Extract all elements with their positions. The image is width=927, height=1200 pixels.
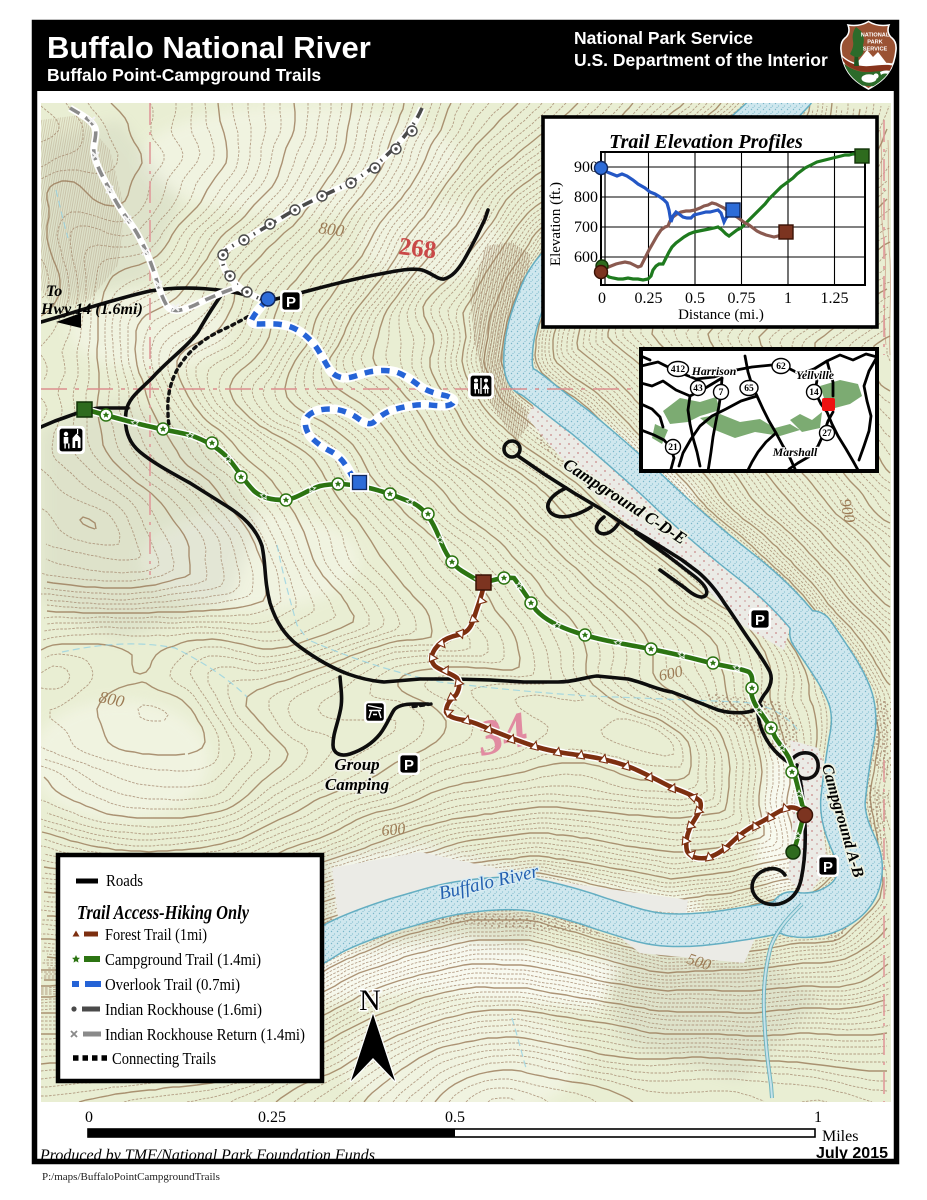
svg-text:Forest Trail (1mi): Forest Trail (1mi): [105, 925, 207, 944]
svg-text:Buffalo Point-Campground Trail: Buffalo Point-Campground Trails: [47, 65, 321, 85]
svg-text:600: 600: [381, 821, 407, 840]
svg-text:0.25: 0.25: [258, 1109, 286, 1126]
svg-text:Indian Rockhouse (1.6mi): Indian Rockhouse (1.6mi): [105, 1000, 262, 1019]
svg-text:1.25: 1.25: [821, 290, 849, 307]
svg-text:700: 700: [574, 219, 598, 236]
svg-text:Harrison: Harrison: [691, 364, 737, 378]
svg-text:Trail Elevation Profiles: Trail Elevation Profiles: [609, 131, 803, 153]
svg-text:0.75: 0.75: [728, 290, 756, 307]
svg-text:Campground Trail (1.4mi): Campground Trail (1.4mi): [105, 950, 261, 969]
svg-text:NATIONAL: NATIONAL: [861, 33, 890, 39]
svg-text:65: 65: [744, 384, 754, 394]
svg-text:Distance (mi.): Distance (mi.): [678, 307, 764, 323]
svg-text:800: 800: [574, 189, 598, 206]
svg-text:14: 14: [809, 388, 819, 398]
svg-text:43: 43: [693, 384, 703, 394]
svg-text:Overlook Trail (0.7mi): Overlook Trail (0.7mi): [105, 975, 240, 994]
svg-text:268: 268: [397, 233, 438, 264]
svg-text:To: To: [46, 283, 62, 300]
svg-text:Elevation (ft.): Elevation (ft.): [548, 182, 564, 266]
svg-text:N: N: [359, 984, 381, 1017]
svg-text:Hwy 14 (1.6mi): Hwy 14 (1.6mi): [40, 301, 143, 318]
svg-text:Miles: Miles: [822, 1128, 858, 1145]
svg-text:600: 600: [574, 249, 598, 266]
svg-text:Indian Rockhouse Return (1.4mi: Indian Rockhouse Return (1.4mi): [105, 1025, 305, 1044]
svg-text:1: 1: [814, 1109, 822, 1126]
svg-text:0: 0: [598, 290, 606, 307]
svg-text:0.5: 0.5: [445, 1109, 465, 1126]
svg-text:7: 7: [719, 388, 724, 398]
svg-text:0.5: 0.5: [685, 290, 705, 307]
svg-text:National Park Service: National Park Service: [574, 28, 753, 48]
svg-text:0: 0: [85, 1109, 93, 1126]
svg-text:PARK: PARK: [867, 40, 882, 46]
svg-text:0.25: 0.25: [635, 290, 663, 307]
svg-text:62: 62: [776, 362, 786, 372]
svg-text:Buffalo National River: Buffalo National River: [47, 30, 371, 65]
svg-text:P:/maps/BuffaloPointCampground: P:/maps/BuffaloPointCampgroundTrails: [42, 1171, 220, 1183]
svg-text:21: 21: [668, 443, 678, 453]
svg-text:Trail Access-Hiking Only: Trail Access-Hiking Only: [77, 903, 249, 924]
svg-text:Connecting Trails: Connecting Trails: [112, 1049, 216, 1068]
svg-text:Group: Group: [334, 755, 379, 774]
svg-text:Yellville: Yellville: [796, 368, 834, 382]
svg-text:SERVICE: SERVICE: [863, 47, 888, 53]
svg-text:Camping: Camping: [325, 775, 390, 794]
svg-text:U.S. Department of the Interio: U.S. Department of the Interior: [574, 50, 828, 70]
svg-text:412: 412: [671, 365, 686, 375]
svg-text:Roads: Roads: [106, 871, 143, 890]
svg-text:Marshall: Marshall: [772, 445, 818, 459]
svg-text:1: 1: [784, 290, 792, 307]
svg-text:27: 27: [822, 429, 832, 439]
svg-text:800: 800: [317, 218, 345, 240]
